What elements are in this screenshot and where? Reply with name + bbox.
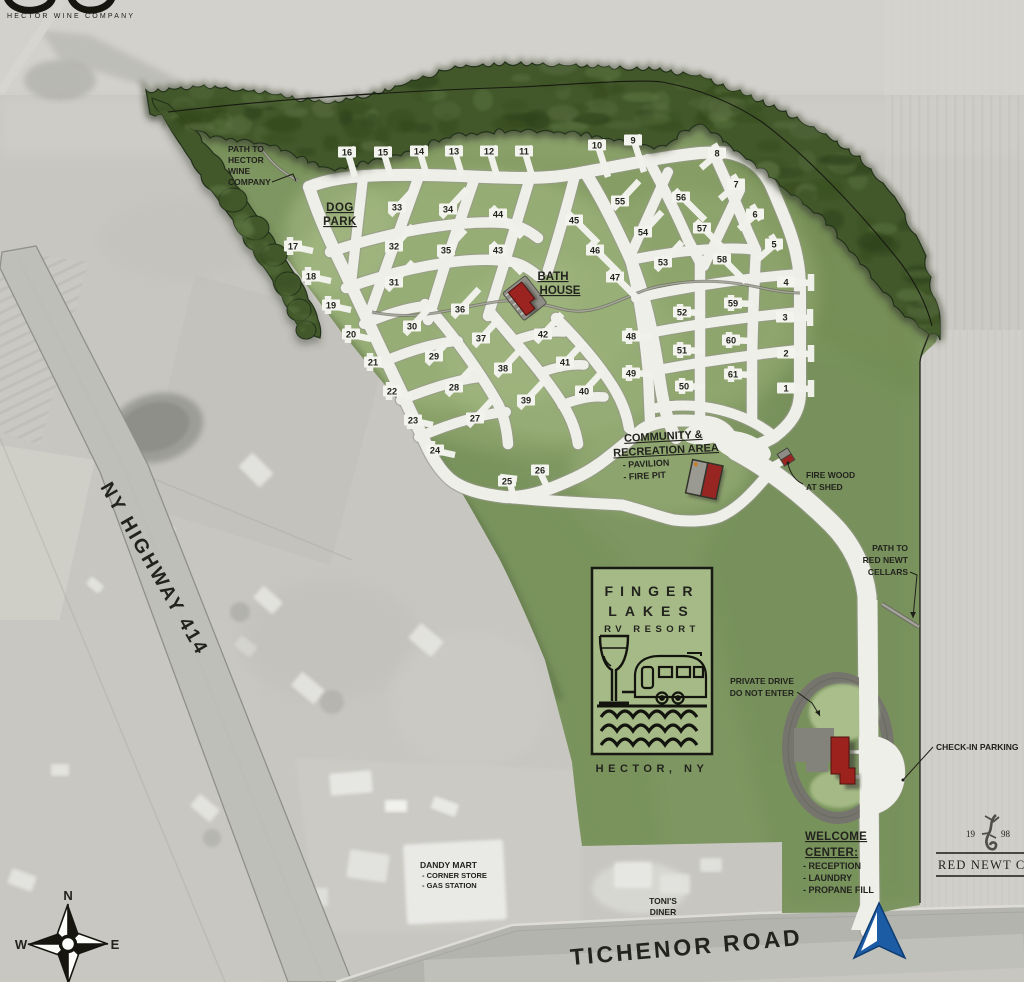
svg-text:12: 12	[484, 146, 494, 156]
svg-text:3: 3	[782, 312, 787, 322]
svg-text:43: 43	[493, 245, 503, 255]
svg-text:PARK: PARK	[323, 216, 357, 228]
svg-text:4: 4	[783, 277, 789, 287]
svg-text:50: 50	[679, 381, 689, 391]
svg-text:46: 46	[590, 245, 600, 255]
svg-text:CELLARS: CELLARS	[868, 567, 908, 577]
svg-text:16: 16	[342, 147, 352, 157]
svg-text:18: 18	[306, 271, 316, 281]
svg-text:24: 24	[430, 445, 441, 455]
svg-text:21: 21	[368, 357, 378, 367]
svg-text:34: 34	[443, 204, 454, 214]
svg-text:59: 59	[728, 298, 738, 308]
svg-text:26: 26	[535, 465, 545, 475]
svg-text:8: 8	[714, 148, 719, 158]
svg-text:28: 28	[449, 382, 459, 392]
svg-text:22: 22	[387, 386, 397, 396]
svg-text:35: 35	[441, 245, 451, 255]
svg-text:- LAUNDRY: - LAUNDRY	[803, 873, 852, 883]
svg-text:PRIVATE DRIVE: PRIVATE DRIVE	[730, 676, 794, 686]
svg-text:DO NOT ENTER: DO NOT ENTER	[730, 688, 794, 698]
svg-text:23: 23	[408, 415, 418, 425]
svg-text:44: 44	[493, 209, 504, 219]
svg-text:HECTOR WINE COMPANY: HECTOR WINE COMPANY	[7, 13, 135, 20]
svg-text:RED NEWT CELLA: RED NEWT CELLA	[938, 858, 1024, 872]
svg-text:10: 10	[592, 140, 602, 150]
svg-text:COMPANY: COMPANY	[228, 177, 271, 187]
svg-text:E: E	[111, 937, 120, 952]
svg-text:52: 52	[677, 307, 687, 317]
svg-text:DINER: DINER	[650, 907, 676, 917]
svg-text:HECTOR, NY: HECTOR, NY	[596, 763, 709, 775]
svg-text:PATH TO: PATH TO	[872, 543, 908, 553]
svg-text:N: N	[63, 888, 72, 903]
svg-text:49: 49	[626, 368, 636, 378]
svg-text:45: 45	[569, 215, 579, 225]
svg-text:47: 47	[610, 272, 620, 282]
svg-text:- CORNER STORE: - CORNER STORE	[422, 871, 487, 880]
svg-text:BATH: BATH	[537, 271, 568, 283]
svg-text:1: 1	[783, 383, 788, 393]
svg-text:7: 7	[733, 179, 738, 189]
svg-text:TONI'S: TONI'S	[649, 896, 677, 906]
svg-text:AT SHED: AT SHED	[806, 482, 843, 492]
svg-text:- GAS STATION: - GAS STATION	[422, 881, 477, 890]
svg-text:61: 61	[728, 369, 738, 379]
svg-text:60: 60	[726, 335, 736, 345]
svg-text:33: 33	[392, 202, 402, 212]
svg-text:39: 39	[521, 395, 531, 405]
svg-text:20: 20	[346, 329, 356, 339]
svg-text:CHECK-IN PARKING: CHECK-IN PARKING	[936, 742, 1019, 752]
svg-text:DANDY MART: DANDY MART	[420, 860, 478, 870]
svg-text:CENTER:: CENTER:	[805, 847, 858, 859]
svg-text:RED NEWT: RED NEWT	[863, 555, 909, 565]
svg-text:37: 37	[476, 333, 486, 343]
svg-text:15: 15	[378, 147, 388, 157]
svg-text:58: 58	[717, 254, 727, 264]
svg-text:38: 38	[498, 363, 508, 373]
svg-text:29: 29	[429, 351, 439, 361]
svg-text:9: 9	[630, 135, 635, 145]
svg-text:- PROPANE FILL: - PROPANE FILL	[803, 885, 874, 895]
svg-text:55: 55	[615, 196, 625, 206]
svg-text:PATH TO: PATH TO	[228, 144, 264, 154]
svg-text:31: 31	[389, 277, 399, 287]
svg-text:WINE: WINE	[228, 166, 251, 176]
svg-text:WELCOME: WELCOME	[805, 831, 867, 843]
svg-text:HECTOR: HECTOR	[228, 155, 264, 165]
svg-text:51: 51	[677, 345, 687, 355]
svg-text:FIRE WOOD: FIRE WOOD	[806, 470, 855, 480]
svg-text:41: 41	[560, 357, 570, 367]
svg-text:13: 13	[449, 146, 459, 156]
svg-text:19: 19	[326, 300, 336, 310]
svg-text:48: 48	[626, 331, 636, 341]
svg-text:53: 53	[658, 257, 668, 267]
svg-text:HOUSE: HOUSE	[540, 285, 581, 297]
svg-text:36: 36	[455, 304, 465, 314]
svg-text:2: 2	[783, 348, 788, 358]
svg-text:42: 42	[538, 329, 548, 339]
svg-text:DOG: DOG	[326, 202, 354, 214]
svg-text:32: 32	[389, 241, 399, 251]
svg-text:57: 57	[697, 223, 707, 233]
svg-text:14: 14	[414, 146, 425, 156]
svg-text:RV RESORT: RV RESORT	[604, 624, 700, 635]
svg-text:17: 17	[288, 241, 298, 251]
svg-text:98: 98	[1001, 829, 1011, 839]
svg-text:11: 11	[519, 146, 529, 156]
svg-text:27: 27	[470, 413, 480, 423]
svg-text:54: 54	[638, 227, 649, 237]
svg-text:25: 25	[502, 476, 512, 486]
svg-text:FINGER: FINGER	[605, 583, 700, 599]
svg-text:56: 56	[676, 192, 686, 202]
svg-text:19: 19	[966, 829, 976, 839]
svg-text:6: 6	[752, 209, 757, 219]
svg-text:5: 5	[771, 239, 776, 249]
svg-text:30: 30	[407, 321, 417, 331]
svg-text:- RECEPTION: - RECEPTION	[803, 861, 861, 871]
svg-text:LAKES: LAKES	[608, 603, 695, 619]
svg-text:W: W	[15, 937, 28, 952]
svg-text:40: 40	[579, 386, 589, 396]
